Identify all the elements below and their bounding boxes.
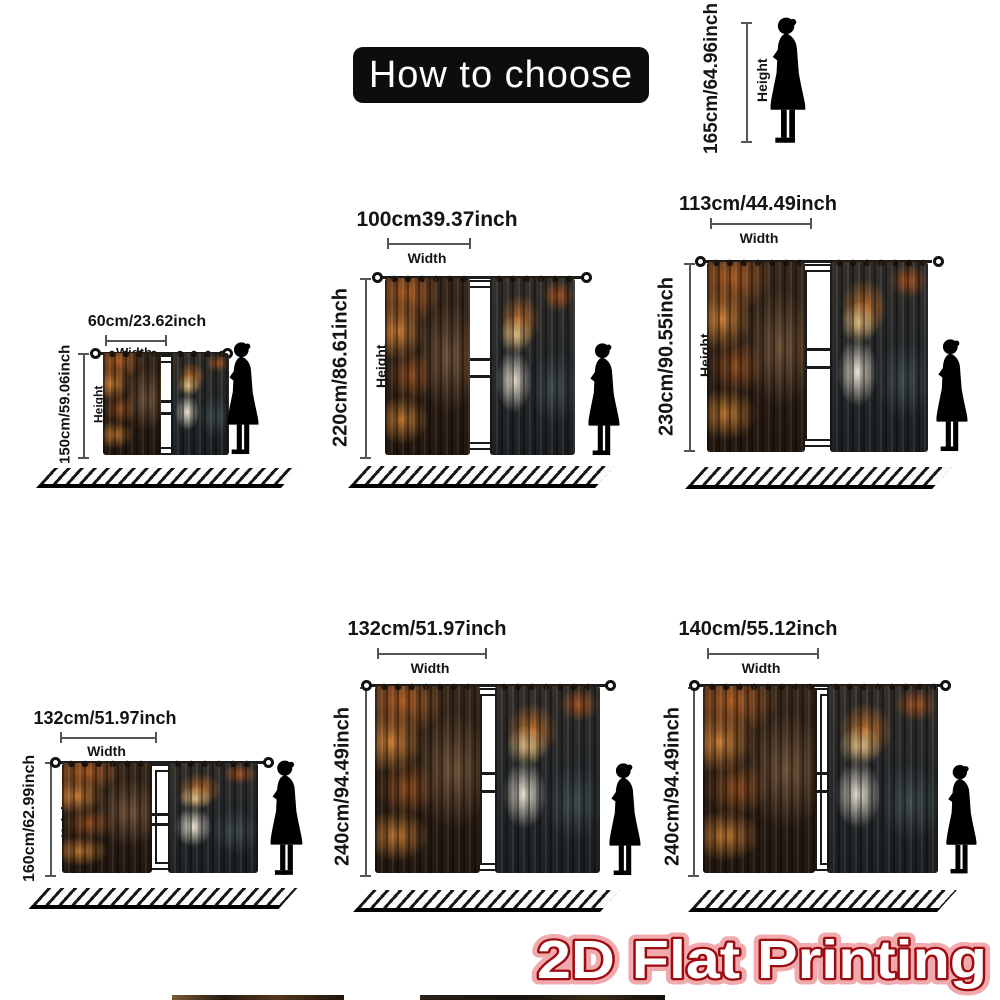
next-image-sliver-left [172,995,344,1000]
person-silhouette-icon [935,338,969,453]
curtain-panel-right [495,686,600,873]
width-caption: Width [60,743,153,759]
floor-hatch [685,467,952,489]
width-caption: Width [387,250,467,266]
rod-ring-left-icon [689,680,700,691]
page-title: How to choose [353,47,649,103]
height-dimension-label: 220cm/86.61inch [328,280,354,455]
height-measure-line [684,263,695,452]
next-image-sliver-right [420,995,665,1000]
width-dimension-label: 140cm/55.12inch [658,618,858,641]
rod-ring-left-icon [90,348,101,359]
size-guide-infographic: How to choose 165cm/64.96inch Height 60c… [0,0,1000,1000]
floor-hatch [36,468,299,488]
size-diagram-132x240: 132cm/51.97inch Width 240cm/94.49inch He… [320,610,650,915]
size-diagram-132x160: 132cm/51.97inch Width 160cm/62.99inch He… [10,700,320,915]
floor-hatch [688,890,957,912]
width-dimension-label: 60cm/23.62inch [47,313,247,331]
curtain-panel-left [103,353,161,455]
width-caption: Width [707,660,815,676]
curtain-panel-right [827,686,938,873]
rod-ring-left-icon [372,272,383,283]
height-dimension-label: 160cm/62.99inch [18,750,42,887]
person-height-label: 165cm/64.96inch [699,2,725,154]
rod-ring-left-icon [50,757,61,768]
curtain-panel-right [171,353,229,455]
height-dimension-label: 240cm/94.49inch [660,698,686,875]
person-silhouette-icon [608,762,642,877]
width-caption: Width [710,230,808,246]
reference-person: 165cm/64.96inch Height [695,2,815,160]
width-measure-line [377,648,487,659]
floor-hatch [348,466,615,488]
width-measure-line [60,732,157,743]
person-silhouette-icon [587,342,621,457]
height-dimension-label: 240cm/94.49inch [330,698,356,875]
curtain-panel-right [490,278,575,455]
rod-ring-right-icon [581,272,592,283]
person-silhouette-icon [226,340,260,457]
person-silhouette-icon [268,760,305,876]
curtain-panel-right [830,262,928,452]
height-measure-line [360,278,371,459]
floor-hatch [29,888,298,909]
width-dimension-label: 132cm/51.97inch [327,618,527,641]
rod-ring-right-icon [940,680,951,691]
curtain-panel-left [385,278,470,455]
rod-ring-right-icon [933,256,944,267]
curtain-panel-right [168,763,258,873]
width-measure-line [707,648,819,659]
curtain-panel-left [707,262,805,452]
width-caption: Width [377,660,483,676]
width-measure-line [710,218,812,229]
height-measure-line [45,762,56,877]
height-measure-line [688,687,699,877]
height-measure-line [78,353,89,459]
floor-hatch [353,890,620,912]
person-height-measure-line [741,22,752,143]
printing-style-text: 2D Flat Printing [537,930,987,990]
person-silhouette-icon [767,17,809,144]
printing-style-badge: 2D Flat Printing 2D Flat Printing [525,920,1000,998]
width-measure-line [387,238,471,249]
rod-ring-right-icon [605,680,616,691]
width-dimension-label: 132cm/51.97inch [10,708,200,729]
height-measure-line [360,687,371,877]
height-dimension-label: 230cm/90.55inch [654,268,680,445]
size-diagram-140x240: 140cm/55.12inch Width 240cm/94.49inch He… [650,610,990,915]
size-diagram-60x150: 60cm/23.62inch Width 150cm/59.06inch Hei… [20,305,310,495]
person-silhouette-icon [945,762,978,877]
rod-ring-left-icon [695,256,706,267]
curtain-panel-left [703,686,815,873]
curtain-panel-left [375,686,480,873]
width-dimension-label: 100cm39.37inch [337,208,537,232]
height-dimension-label: 150cm/59.06inch [54,343,76,465]
rod-ring-left-icon [361,680,372,691]
size-diagram-113x230: 113cm/44.49inch Width 230cm/90.55inch He… [650,185,980,495]
width-dimension-label: 113cm/44.49inch [658,193,858,216]
size-diagram-100x220: 100cm39.37inch Width 220cm/86.61inch Hei… [320,200,630,495]
curtain-panel-left [62,763,152,873]
